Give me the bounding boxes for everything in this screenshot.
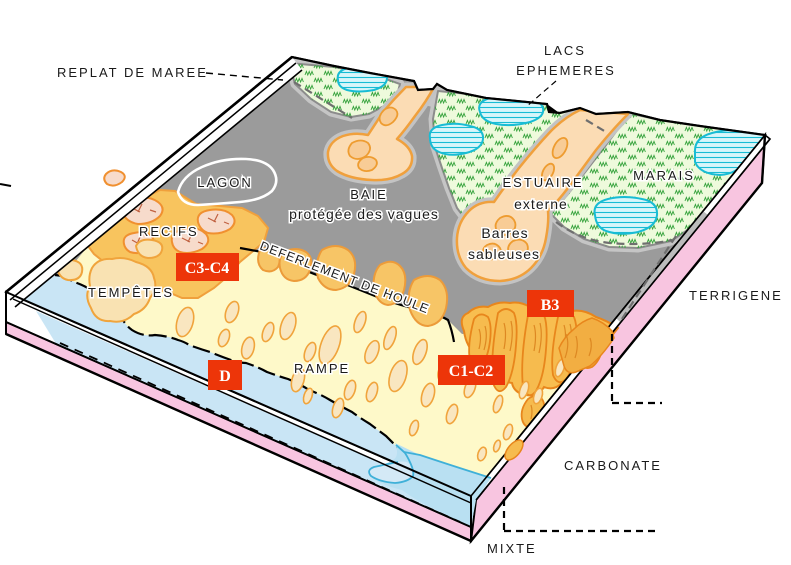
svg-text:protégée des vagues: protégée des vagues (289, 206, 439, 222)
svg-text:REPLAT DE MAREE: REPLAT DE MAREE (57, 65, 208, 80)
svg-text:MIXTE: MIXTE (487, 541, 537, 556)
svg-text:TEMPÊTES: TEMPÊTES (88, 285, 174, 300)
svg-text:RAMPE: RAMPE (294, 361, 350, 376)
svg-text:LACS: LACS (544, 43, 586, 58)
svg-text:EPHEMERES: EPHEMERES (516, 63, 616, 78)
svg-text:LAGON: LAGON (197, 175, 253, 190)
svg-text:CARBONATE: CARBONATE (564, 458, 662, 473)
svg-text:B3: B3 (541, 297, 560, 314)
svg-text:sableuses: sableuses (468, 246, 540, 262)
svg-text:RECIFS: RECIFS (139, 224, 199, 239)
svg-text:ESTUAIRE: ESTUAIRE (502, 175, 583, 190)
svg-text:D: D (219, 368, 231, 385)
svg-text:C1-C2: C1-C2 (449, 363, 493, 380)
svg-text:BAIE: BAIE (350, 187, 388, 202)
svg-text:C3-C4: C3-C4 (185, 260, 229, 277)
svg-text:MARAIS: MARAIS (633, 168, 695, 183)
svg-text:Barres: Barres (481, 225, 528, 241)
svg-text:externe: externe (514, 196, 568, 212)
svg-text:TERRIGENE: TERRIGENE (689, 288, 783, 303)
